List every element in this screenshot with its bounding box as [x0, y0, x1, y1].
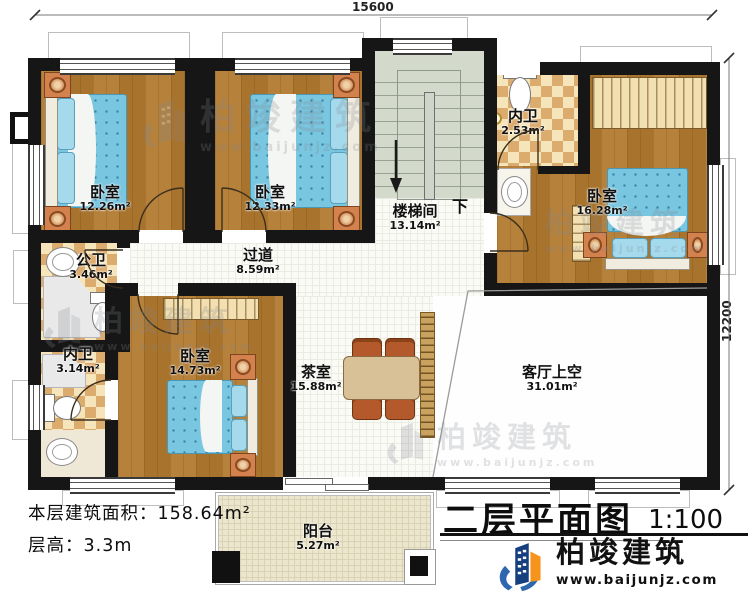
pillow	[57, 98, 75, 150]
wall	[183, 230, 222, 243]
wall	[105, 420, 118, 477]
wall	[105, 283, 138, 296]
room-label-tea-room: 茶室 15.88m²	[266, 364, 366, 394]
pillow	[650, 238, 686, 258]
stair-down-label: 下	[452, 193, 468, 217]
pillow	[231, 385, 247, 417]
room-label-corridor: 过道 8.59m²	[193, 247, 323, 277]
brand-text: 柏竣建筑 www.baijunjz.com	[556, 538, 718, 588]
floor-height-note: 层高：3.3m	[28, 532, 251, 557]
room-label-ensuite-left: 内卫 3.14m²	[48, 346, 108, 376]
headboard	[247, 378, 258, 456]
sliding-door-panel	[325, 484, 369, 491]
wall	[707, 62, 720, 165]
floor-area-note: 本层建筑面积：158.64m²	[28, 500, 251, 525]
brand-logo-icon	[494, 538, 550, 592]
window-bay	[48, 32, 190, 60]
dimension-top: 15600	[352, 0, 394, 14]
wall	[28, 477, 70, 490]
balcony-post	[410, 556, 428, 576]
dimension-right: 12200	[720, 300, 734, 342]
toilet-nook	[497, 62, 540, 75]
wardrobe	[163, 298, 259, 320]
wall	[117, 243, 130, 248]
room-label-bedroom1: 卧室 12.26m²	[55, 184, 155, 214]
plan-scale: 1:100	[648, 505, 723, 535]
wall	[175, 477, 283, 490]
nightstand	[44, 72, 71, 98]
room-label-balcony: 阳台 5.27m²	[268, 523, 368, 553]
room-label-void: 客厅上空 31.01m²	[500, 364, 604, 394]
headboard	[605, 258, 690, 270]
wall	[538, 166, 578, 174]
wall	[578, 62, 590, 174]
window-bay	[222, 32, 364, 60]
window	[28, 145, 45, 225]
nightstand	[230, 453, 256, 477]
brand-name: 柏竣建筑	[556, 538, 718, 567]
window	[393, 38, 452, 55]
closet-wall	[185, 71, 215, 230]
pillow	[330, 152, 348, 204]
window	[707, 165, 724, 265]
floor-plan-canvas: 15600 12200	[0, 0, 750, 597]
wall	[550, 477, 595, 490]
room-label-bedroom3: 卧室 16.28m²	[552, 188, 652, 218]
toilet-bowl	[53, 396, 81, 420]
wall	[178, 283, 296, 296]
room-label-bedroom4: 卧室 14.73m²	[145, 348, 245, 378]
window	[28, 385, 45, 430]
headboard	[347, 92, 360, 210]
nightstand	[333, 72, 360, 98]
bed-sheet	[200, 380, 222, 452]
brand-logo: 柏竣建筑 www.baijunjz.com	[494, 538, 718, 592]
wall	[484, 283, 707, 296]
wall	[540, 62, 707, 75]
wall	[175, 58, 235, 71]
brand-url: www.baijunjz.com	[556, 572, 718, 588]
nightstand	[583, 232, 607, 258]
pillow	[330, 98, 348, 150]
room-label-bedroom2: 卧室 12.33m²	[220, 184, 320, 214]
nightstand	[687, 232, 708, 258]
pillow	[231, 419, 247, 451]
sink	[46, 438, 78, 466]
room-label-public-bath: 公卫 3.46m²	[62, 252, 120, 282]
wall	[707, 265, 720, 490]
railing	[420, 312, 435, 438]
wall	[28, 230, 139, 243]
pillow	[612, 238, 648, 258]
wardrobe	[592, 77, 707, 129]
window	[70, 477, 175, 494]
sink	[501, 176, 528, 208]
window	[235, 58, 350, 75]
room-label-ensuite-top: 内卫 2.53m²	[492, 108, 554, 138]
stair-center-rail	[424, 92, 435, 200]
window	[60, 58, 175, 75]
wall	[368, 477, 445, 490]
wall	[680, 477, 720, 490]
plan-notes: 本层建筑面积：158.64m² 层高：3.3m	[28, 500, 251, 564]
window-bay	[380, 17, 468, 40]
